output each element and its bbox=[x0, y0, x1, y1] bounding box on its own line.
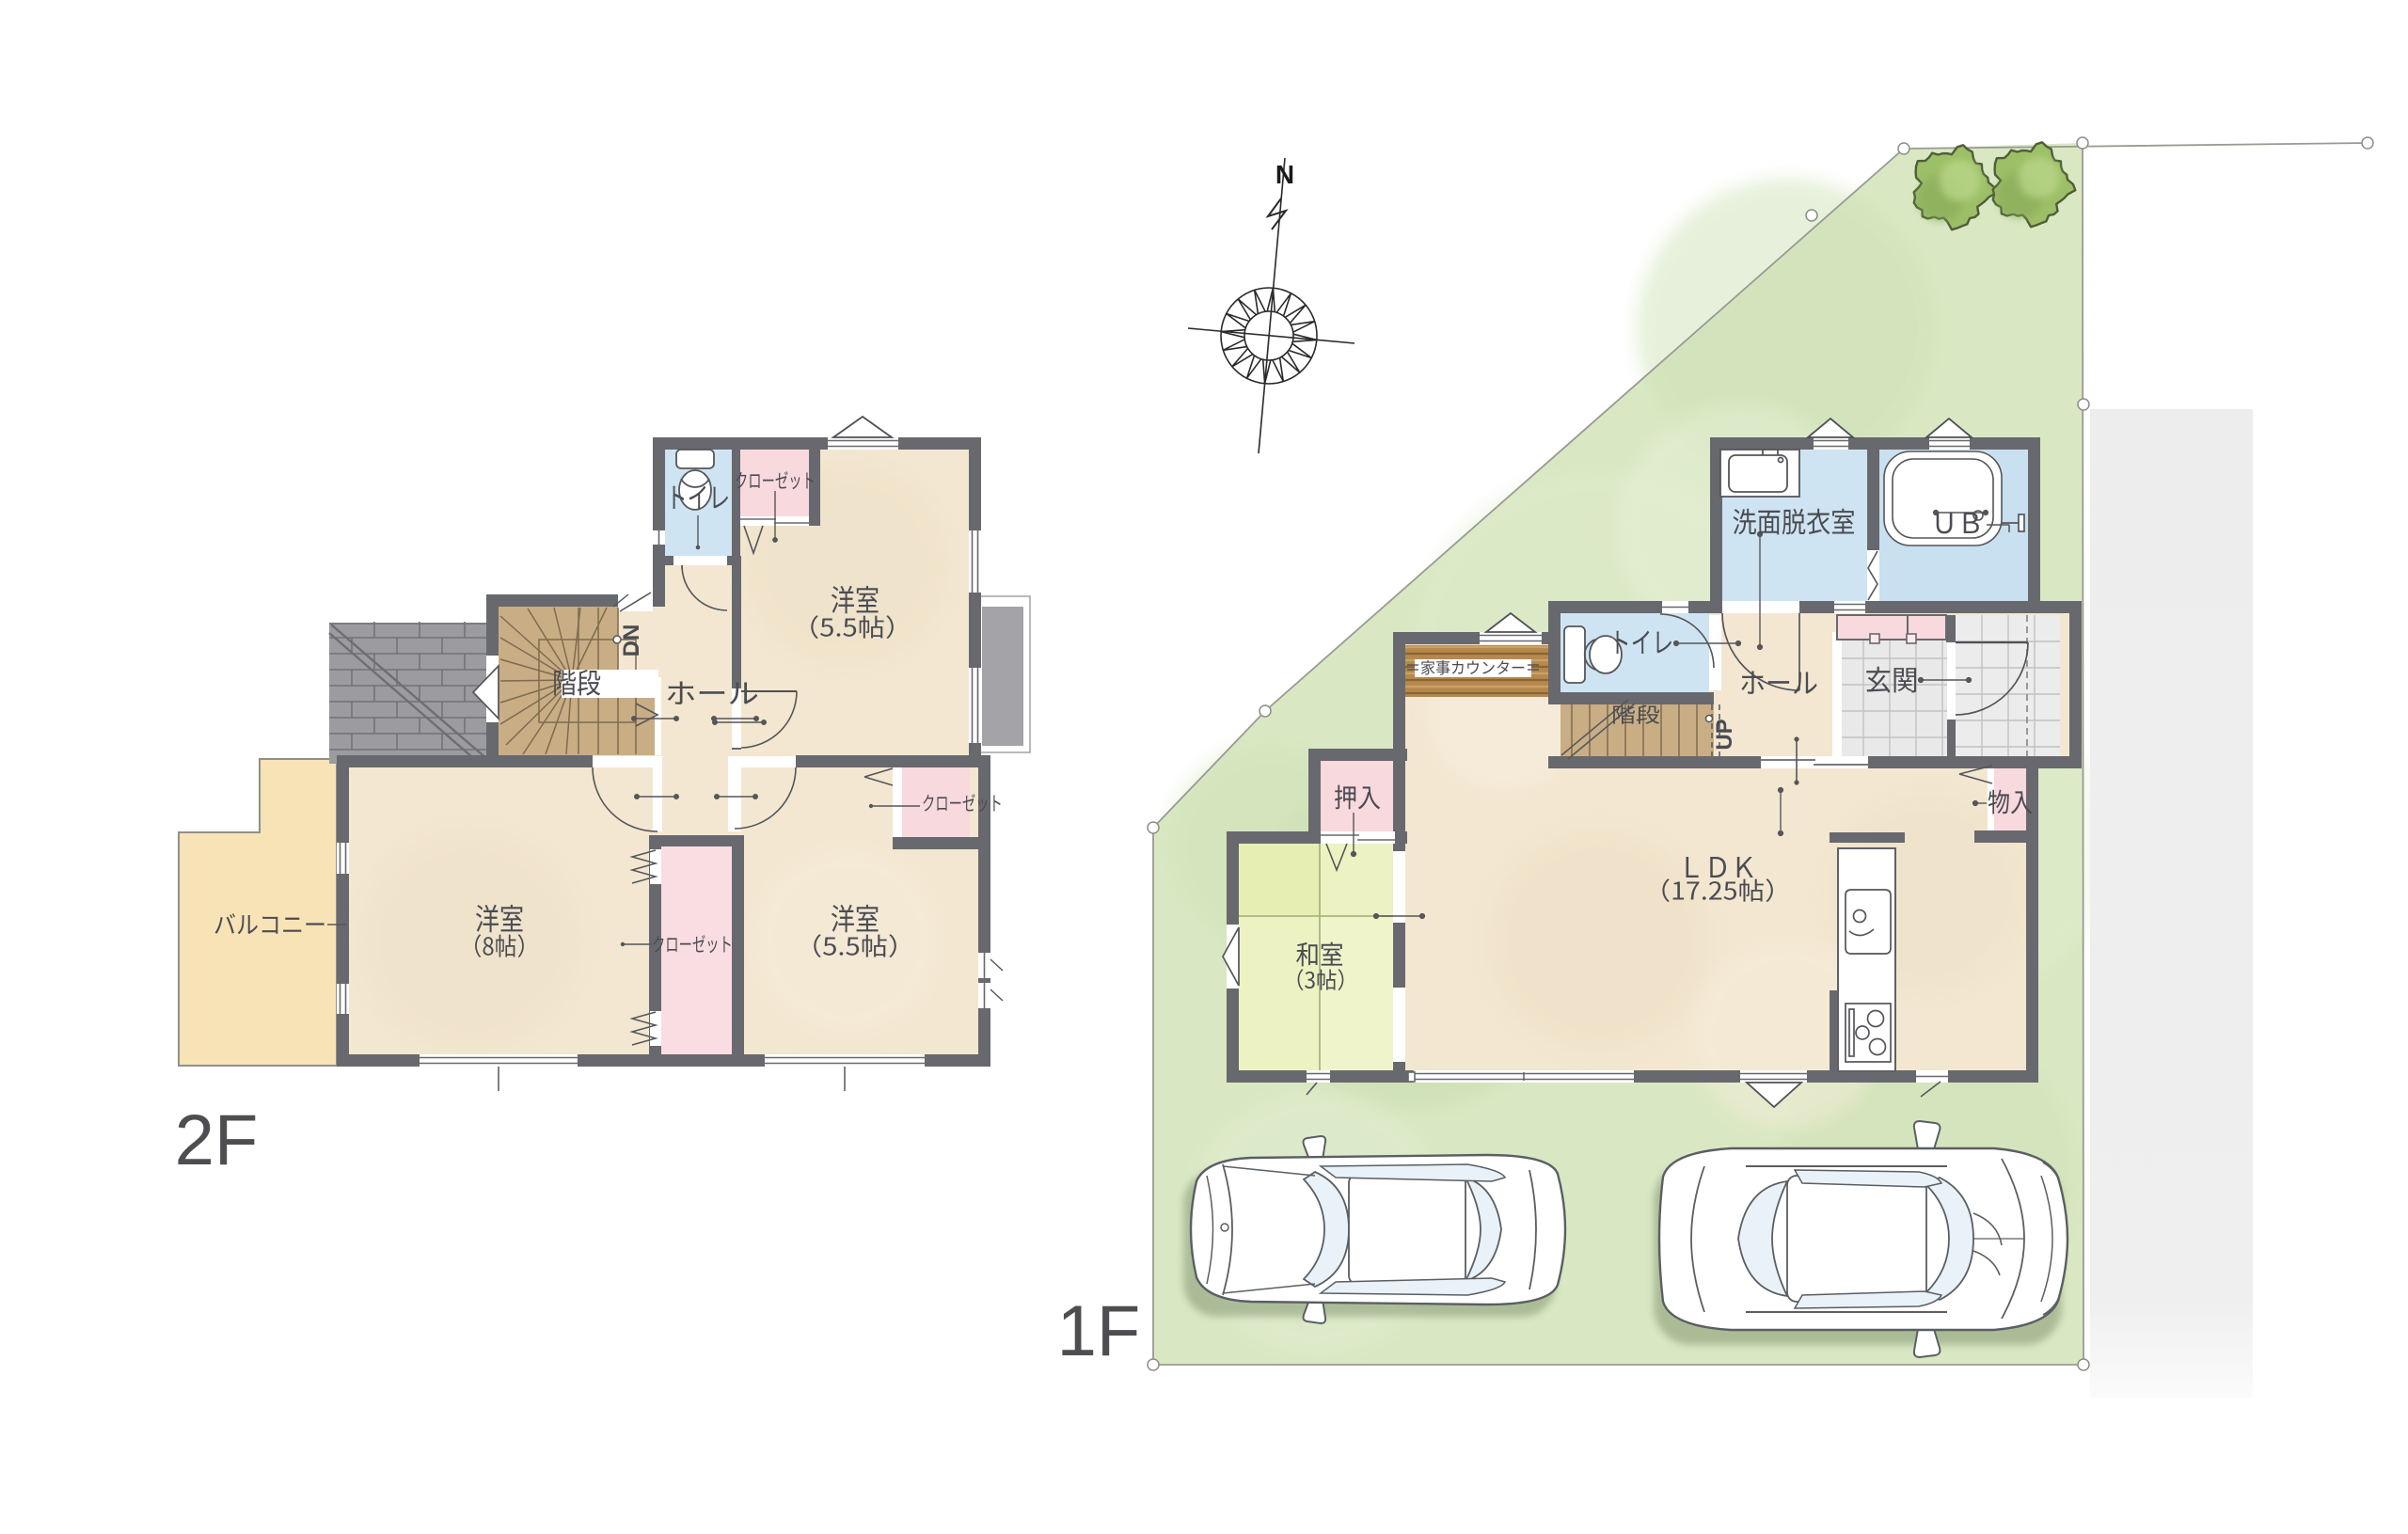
svg-text:2F: 2F bbox=[175, 1100, 259, 1180]
svg-text:UP: UP bbox=[1712, 719, 1737, 750]
svg-text:DN: DN bbox=[619, 625, 644, 657]
svg-text:1F: 1F bbox=[1057, 1291, 1141, 1371]
svg-text:N: N bbox=[1275, 160, 1294, 189]
